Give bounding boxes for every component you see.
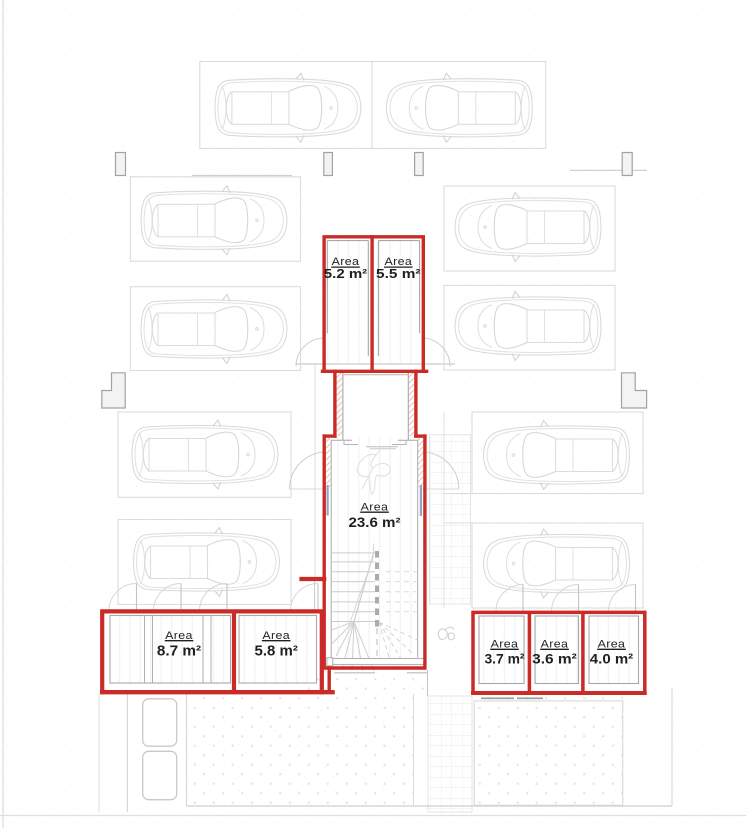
svg-text:4.0 m²: 4.0 m² bbox=[590, 652, 634, 668]
svg-text:Area: Area bbox=[262, 630, 290, 642]
svg-text:Area: Area bbox=[598, 638, 626, 650]
svg-text:Area: Area bbox=[491, 638, 519, 650]
svg-text:Area: Area bbox=[165, 630, 193, 642]
svg-text:3.7 m²: 3.7 m² bbox=[484, 652, 524, 668]
svg-text:8.7 m²: 8.7 m² bbox=[157, 644, 201, 660]
svg-text:5.2 m²: 5.2 m² bbox=[324, 267, 367, 281]
svg-text:Area: Area bbox=[361, 501, 389, 513]
svg-text:5.5 m²: 5.5 m² bbox=[376, 267, 421, 281]
svg-text:3.6 m²: 3.6 m² bbox=[532, 652, 577, 668]
svg-text:23.6 m²: 23.6 m² bbox=[349, 515, 402, 530]
svg-text:Area: Area bbox=[541, 638, 569, 650]
svg-text:5.8 m²: 5.8 m² bbox=[255, 644, 298, 660]
